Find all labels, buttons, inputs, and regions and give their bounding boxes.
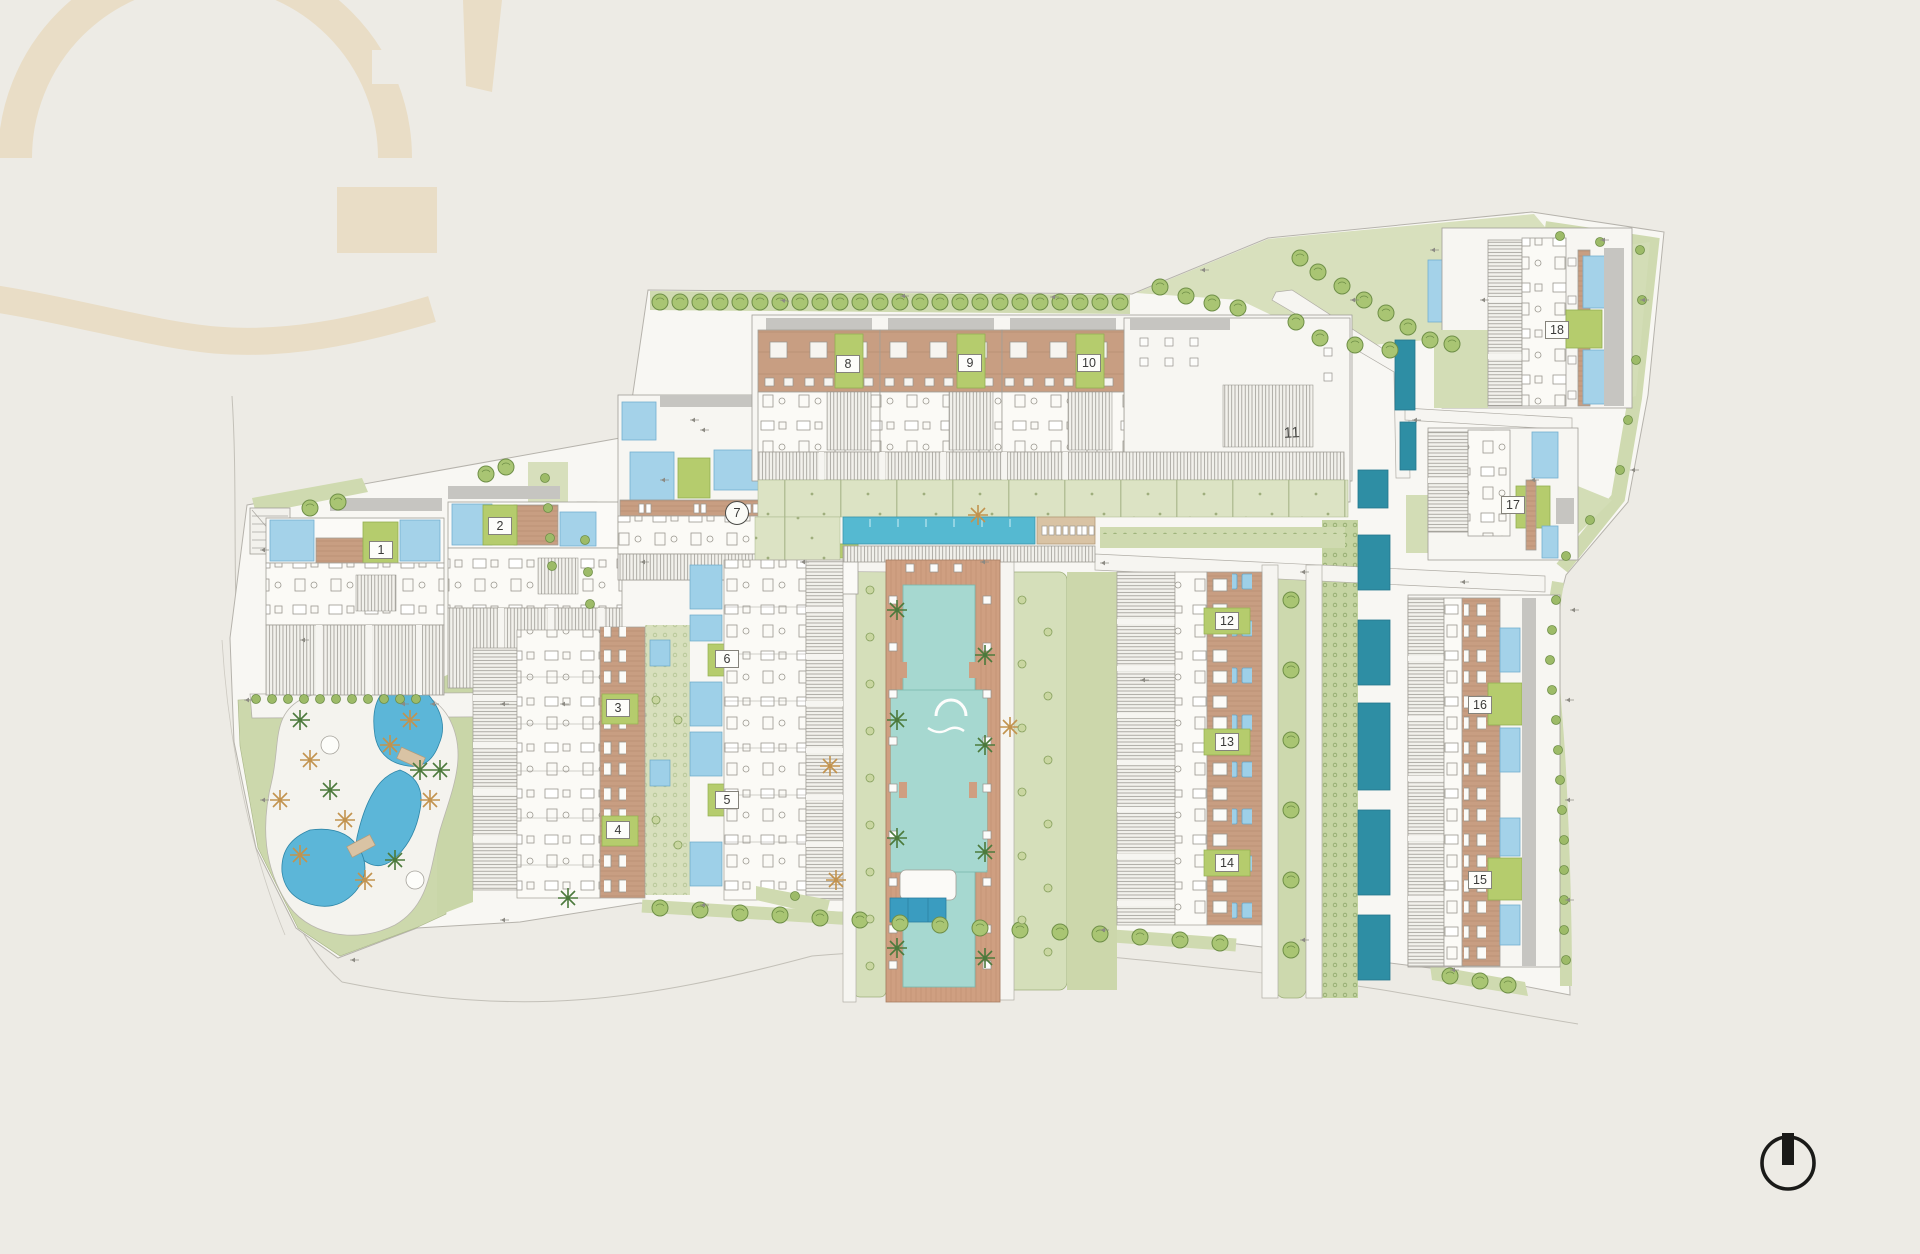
- column-12-13-14: [1117, 572, 1262, 925]
- site-plan: 123456789101112131415161718: [0, 0, 1920, 1254]
- buildings-15-16-column: [1408, 595, 1560, 967]
- building-module-9: [880, 318, 1002, 452]
- site-plan-drawing: [0, 0, 1920, 1254]
- building-18-block: [1434, 228, 1632, 408]
- lap-pool: [843, 517, 1035, 544]
- building-7-block: [618, 395, 765, 580]
- building-module-8: [758, 318, 880, 452]
- building-module-10: [1002, 318, 1124, 452]
- building-17-block: [1428, 428, 1578, 560]
